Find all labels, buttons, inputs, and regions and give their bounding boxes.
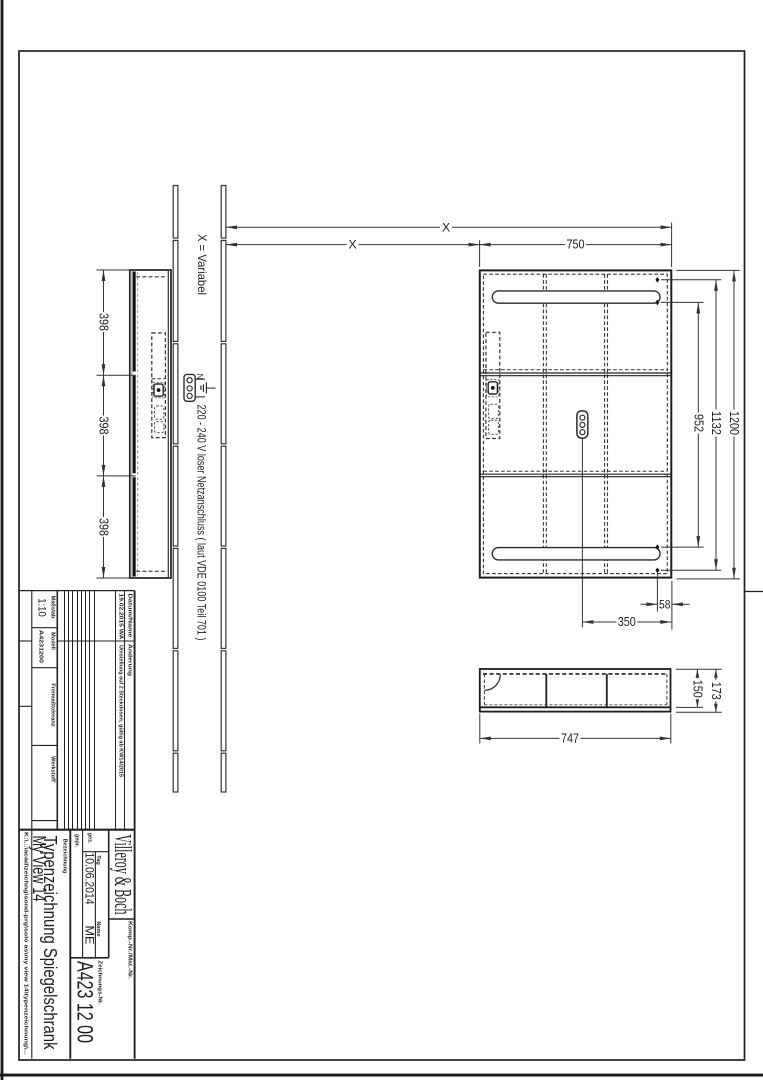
svg-text:350: 350 [618, 615, 636, 629]
svg-text:1:10: 1:10 [35, 598, 47, 617]
svg-text:952: 952 [691, 414, 705, 432]
svg-text:A423 12 00: A423 12 00 [73, 961, 98, 1043]
svg-text:58: 58 [659, 597, 671, 611]
svg-text:10.06.2014: 10.06.2014 [83, 853, 95, 906]
svg-text:173: 173 [709, 682, 723, 700]
svg-text:Freimaßtoleranz: Freimaßtoleranz [50, 683, 56, 726]
svg-text:K:\...\acad\zeichng\sond-prg\s: K:\...\acad\zeichng\sond-prg\solo as\my … [22, 832, 28, 1056]
svg-text:Modell: Modell [50, 632, 56, 650]
svg-text:220 - 240 V loser Netzanschlus: 220 - 240 V loser Netzanschluss ( laut V… [195, 405, 209, 641]
svg-text:1132: 1132 [709, 411, 723, 435]
svg-text:150: 150 [690, 680, 704, 698]
svg-text:Name: Name [95, 921, 101, 936]
svg-text:Tag: Tag [95, 855, 101, 865]
svg-text:gez.: gez. [87, 833, 93, 844]
svg-text:X = Variabel: X = Variabel [195, 234, 209, 295]
svg-text:My View 14: My View 14 [29, 836, 49, 902]
svg-text:Datum/Name: Datum/Name [127, 594, 133, 638]
svg-text:Bezeichnung: Bezeichnung [62, 839, 68, 874]
svg-text:Umstellung auf 2 Steckdosen; g: Umstellung auf 2 Steckdosen; gültig ab K… [117, 645, 123, 777]
svg-text:Komp.-Nr./Mat.-Nr.: Komp.-Nr./Mat.-Nr. [126, 921, 132, 980]
svg-text:398: 398 [96, 518, 110, 536]
svg-text:ME: ME [83, 926, 95, 945]
svg-text:Änderung: Änderung [127, 644, 134, 677]
svg-text:A4231200: A4231200 [38, 630, 44, 663]
svg-text:X: X [348, 238, 356, 252]
svg-text:gepr.: gepr. [74, 834, 80, 848]
svg-text:750: 750 [567, 238, 585, 252]
svg-text:747: 747 [561, 731, 579, 745]
svg-text:19.02.2015 WA: 19.02.2015 WA [117, 594, 123, 640]
svg-text:Villeroy & Boch: Villeroy & Boch [109, 835, 135, 915]
svg-text:N: N [195, 374, 205, 380]
svg-text:X: X [442, 220, 450, 234]
svg-text:398: 398 [96, 417, 110, 435]
svg-text:Werkstoff: Werkstoff [50, 756, 56, 782]
svg-text:Maßstab: Maßstab [50, 596, 56, 619]
svg-text:1200: 1200 [727, 411, 741, 435]
svg-text:398: 398 [96, 313, 110, 331]
